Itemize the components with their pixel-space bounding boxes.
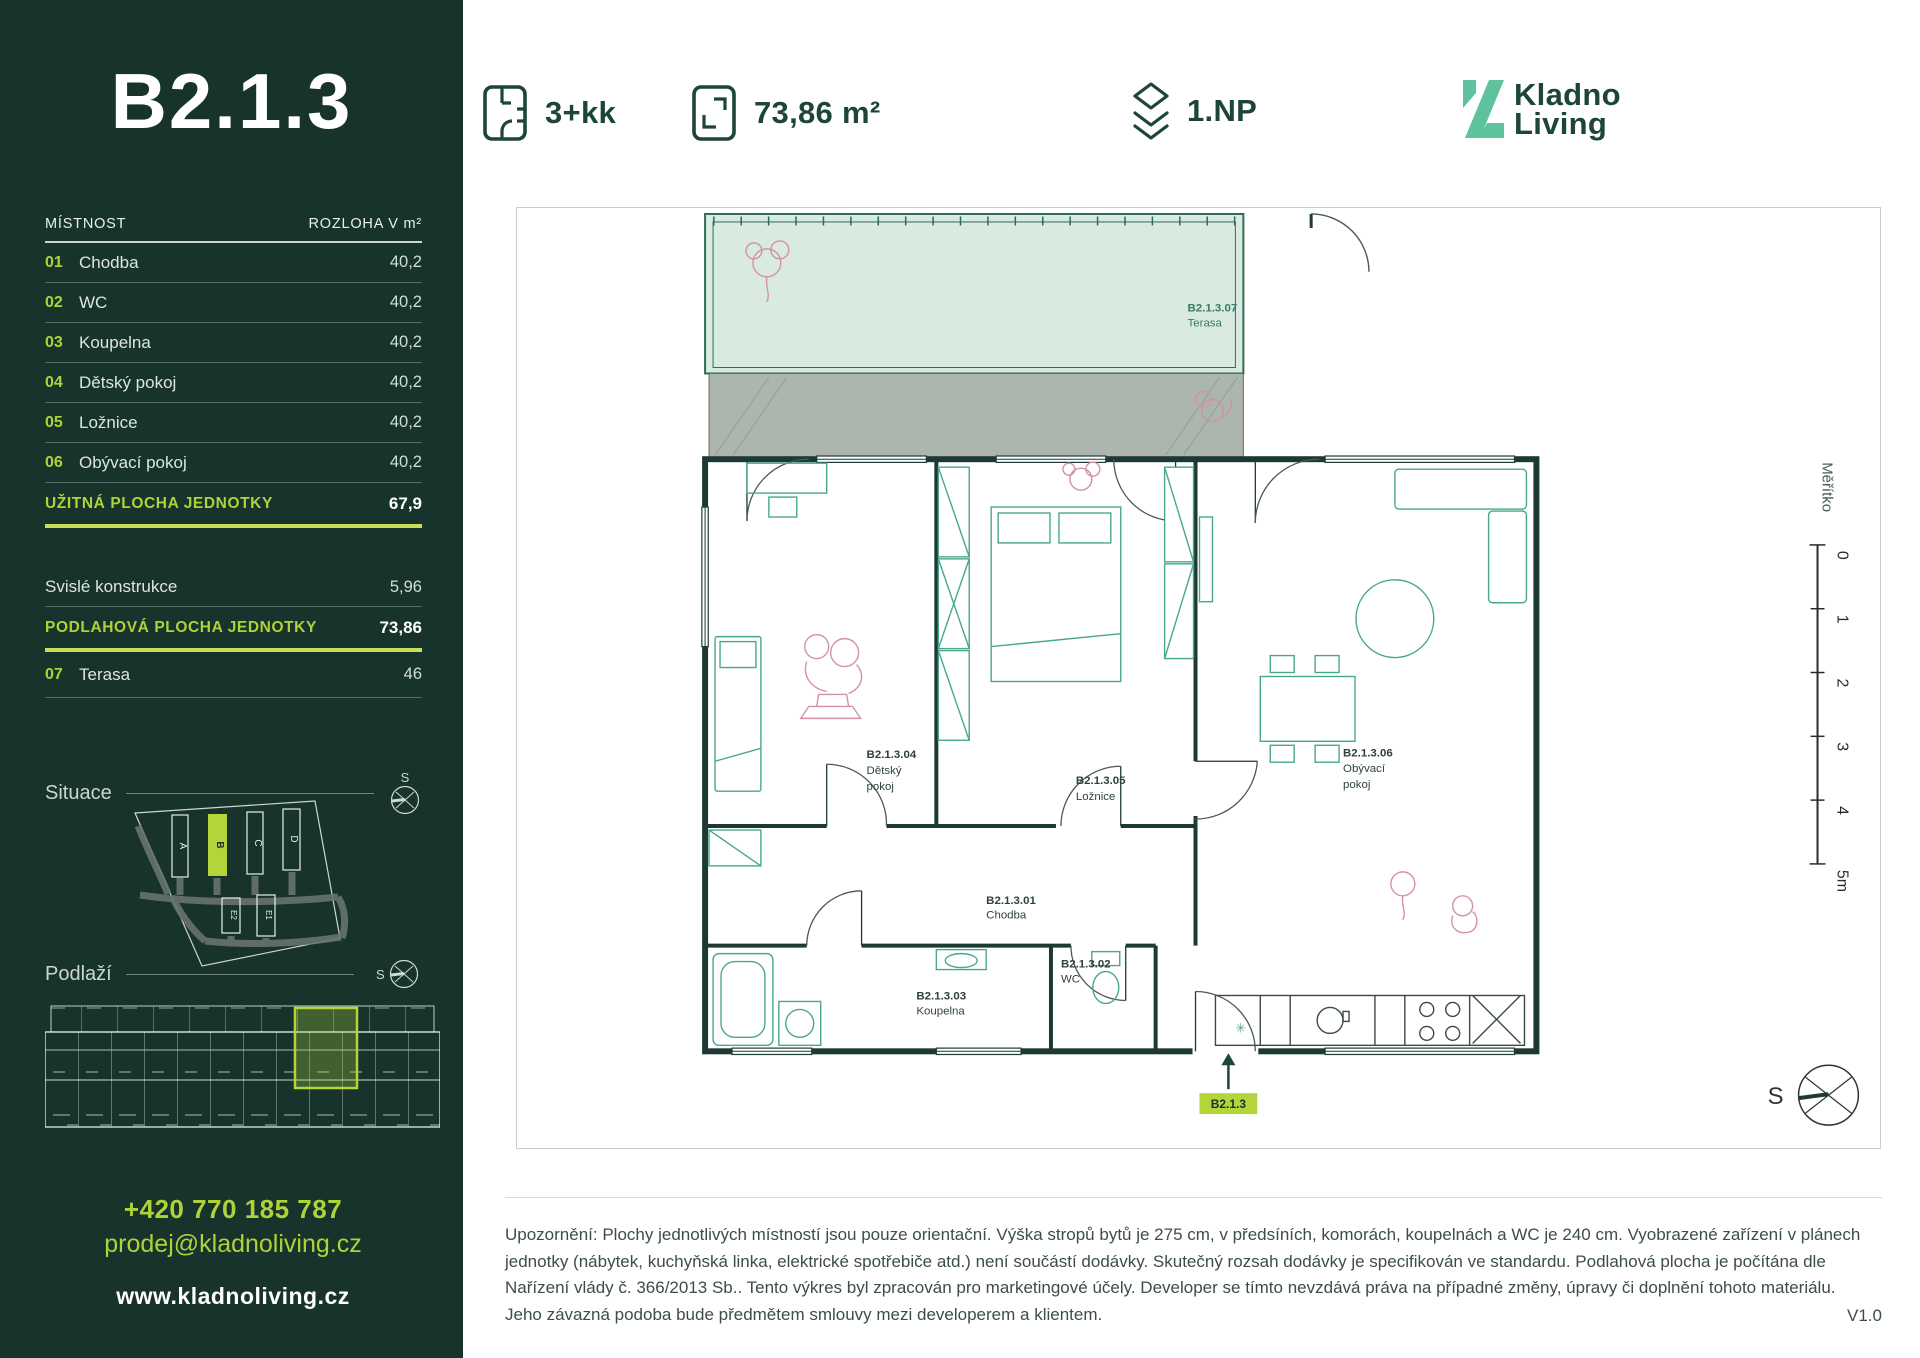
svg-text:B2.1.3: B2.1.3 xyxy=(1211,1097,1247,1111)
svg-text:0: 0 xyxy=(1833,551,1850,560)
svg-text:B2.1.3.03: B2.1.3.03 xyxy=(916,990,966,1002)
compass-icon: S xyxy=(388,770,422,816)
floor-label: 1.NP xyxy=(1187,93,1257,129)
svg-text:C: C xyxy=(252,839,263,846)
svg-text:S: S xyxy=(376,967,385,982)
website-link[interactable]: www.kladnoliving.cz xyxy=(43,1283,423,1310)
brand-text: Kladno Living xyxy=(1514,80,1621,138)
usable-area-row: UŽITNÁ PLOCHA JEDNOTKY 67,9 xyxy=(45,483,422,528)
svg-text:B2.1.3.05: B2.1.3.05 xyxy=(1076,775,1126,787)
sidebar: B2.1.3 MÍSTNOST ROZLOHA V m² 01 Chodba 4… xyxy=(0,0,463,1358)
layout-label: 3+kk xyxy=(545,95,616,131)
unit-title: B2.1.3 xyxy=(0,56,463,147)
table-row: 01 Chodba 40,2 xyxy=(45,243,422,283)
svg-text:B2.1.3.02: B2.1.3.02 xyxy=(1061,959,1111,971)
highlighted-unit xyxy=(295,1008,357,1088)
table-row: 06 Obývací pokoj 40,2 xyxy=(45,443,422,483)
divider xyxy=(126,974,354,975)
svg-text:5m: 5m xyxy=(1833,870,1850,892)
layout-info: 3+kk xyxy=(483,85,616,141)
contact-block: +420 770 185 787 prodej@kladnoliving.cz … xyxy=(43,1194,423,1310)
area-label: 73,86 m² xyxy=(754,95,880,131)
divider xyxy=(126,793,374,794)
email-link[interactable]: prodej@kladnoliving.cz xyxy=(43,1230,423,1259)
terrace-row: 07 Terasa 46 xyxy=(45,652,422,698)
version-label: V1.0 xyxy=(1822,1306,1882,1326)
floor-plan-drawing: B2.1.3.07 Terasa xyxy=(517,208,1880,1148)
svg-text:S: S xyxy=(401,770,410,785)
compass-icon: S xyxy=(368,958,422,990)
table-row: 03 Koupelna 40,2 xyxy=(45,323,422,363)
freezer-symbol: ✳ xyxy=(1235,1020,1246,1035)
entrance-gap xyxy=(1193,1047,1259,1055)
floor-plan-canvas: B2.1.3.07 Terasa xyxy=(516,207,1881,1149)
kladno-living-logo-icon xyxy=(1463,80,1505,138)
svg-text:A: A xyxy=(177,843,188,850)
room-table: MÍSTNOST ROZLOHA V m² 01 Chodba 40,2 02 … xyxy=(45,216,422,698)
svg-text:B2.1.3.04: B2.1.3.04 xyxy=(867,749,917,761)
svg-text:Terasa: Terasa xyxy=(1188,318,1223,330)
table-row: 04 Dětský pokoj 40,2 xyxy=(45,363,422,403)
col-room: MÍSTNOST xyxy=(45,216,126,232)
svg-text:WC: WC xyxy=(1061,974,1080,986)
footer-divider xyxy=(505,1197,1882,1198)
svg-text:1: 1 xyxy=(1833,615,1850,624)
svg-text:3: 3 xyxy=(1833,742,1850,751)
svg-text:2: 2 xyxy=(1833,678,1850,687)
entrance-marker: B2.1.3 xyxy=(1199,1053,1257,1114)
table-row: 02 WC 40,2 xyxy=(45,283,422,323)
vertical-structures-row: Svislé konstrukce 5,96 xyxy=(45,568,422,607)
floor-level-icon xyxy=(1133,82,1169,140)
svg-text:Chodba: Chodba xyxy=(986,910,1027,922)
svg-text:pokoj: pokoj xyxy=(867,781,894,793)
stairwell-door xyxy=(1311,214,1369,272)
svg-text:B2.1.3.07: B2.1.3.07 xyxy=(1188,303,1238,315)
svg-text:Ložnice: Ložnice xyxy=(1076,791,1115,803)
floor-strip-plan xyxy=(45,1002,440,1142)
svg-text:E2: E2 xyxy=(229,910,238,920)
scale-ruler: Měřítko 0 1 2 3 4 5m xyxy=(1810,462,1851,892)
area-info: 73,86 m² xyxy=(692,85,880,141)
svg-text:B2.1.3.06: B2.1.3.06 xyxy=(1343,747,1393,759)
svg-text:B2.1.3.01: B2.1.3.01 xyxy=(986,895,1036,907)
table-header: MÍSTNOST ROZLOHA V m² xyxy=(45,216,422,243)
phone-link[interactable]: +420 770 185 787 xyxy=(43,1194,423,1225)
svg-text:pokoj: pokoj xyxy=(1343,779,1370,791)
svg-text:Měřítko: Měřítko xyxy=(1819,462,1836,512)
podlazi-label: Podlaží xyxy=(45,963,112,986)
floorplan-icon xyxy=(483,85,527,141)
svg-text:S: S xyxy=(1768,1083,1784,1110)
floor-area-row: PODLAHOVÁ PLOCHA JEDNOTKY 73,86 xyxy=(45,607,422,652)
svg-text:4: 4 xyxy=(1833,806,1850,815)
disclaimer-text: Upozornění: Plochy jednotlivých místnost… xyxy=(505,1222,1860,1328)
table-row: 05 Ložnice 40,2 xyxy=(45,403,422,443)
floor-info: 1.NP xyxy=(1133,82,1257,140)
site-map: A B C D E2 E1 xyxy=(110,798,370,973)
svg-text:D: D xyxy=(288,835,299,842)
site-roads xyxy=(138,826,345,944)
svg-text:Dětský: Dětský xyxy=(867,765,902,777)
brand-logo: Kladno Living xyxy=(1463,80,1621,138)
svg-text:B: B xyxy=(214,841,225,848)
terrace-area: B2.1.3.07 Terasa xyxy=(705,214,1243,373)
podlazi-section-header: Podlaží S xyxy=(45,958,422,990)
col-area: ROZLOHA V m² xyxy=(308,216,422,232)
svg-text:Koupelna: Koupelna xyxy=(916,1005,965,1017)
svg-text:E1: E1 xyxy=(264,910,273,920)
svg-text:Obývací: Obývací xyxy=(1343,763,1386,775)
area-icon xyxy=(692,85,736,141)
north-compass-icon: S xyxy=(1768,1065,1859,1125)
gray-zone xyxy=(709,373,1243,459)
situace-label: Situace xyxy=(45,782,112,805)
